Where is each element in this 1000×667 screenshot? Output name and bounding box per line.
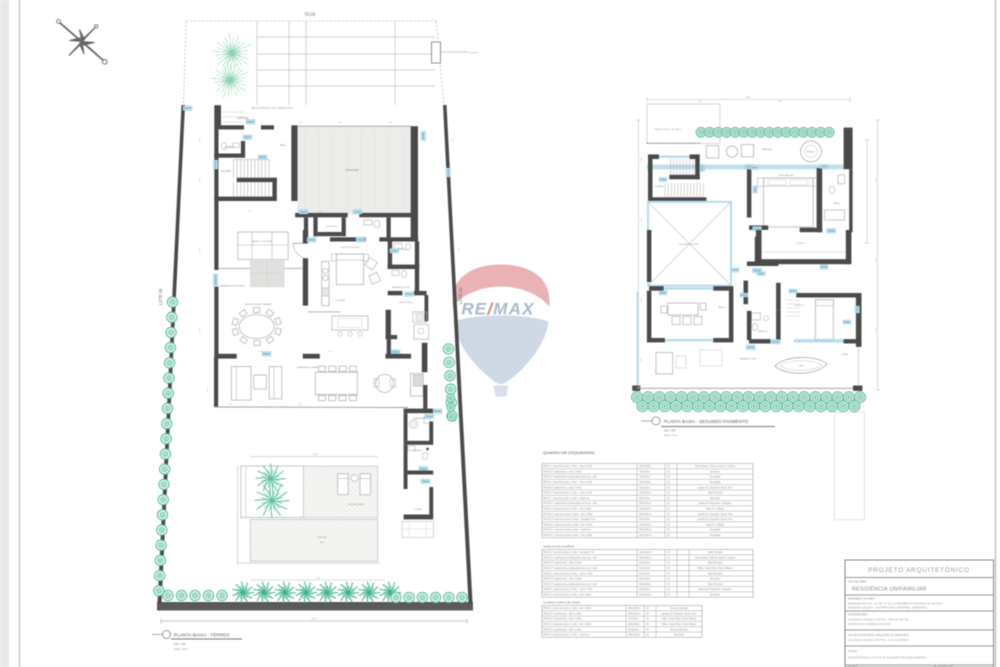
svg-text:240x230cm: 240x230cm xyxy=(628,607,640,610)
svg-text:LAVABO: LAVABO xyxy=(224,146,233,149)
svg-text:Área de Entrada: Área de Entrada xyxy=(670,607,688,610)
svg-text:80x210cm: 80x210cm xyxy=(639,497,650,500)
svg-text:BANHEIRO SOCIAL: BANHEIRO SOCIAL xyxy=(392,286,409,289)
svg-text:GUARDA CORPO DE VIDRO: GUARDA CORPO DE VIDRO xyxy=(543,601,581,605)
svg-text:SUÍTE 02: SUÍTE 02 xyxy=(794,304,804,307)
svg-text:ENDEREÇO DA OBRA:: ENDEREÇO DA OBRA: xyxy=(848,597,876,601)
svg-text:CLOSET: CLOSET xyxy=(796,243,805,245)
svg-text:Escritório: Escritório xyxy=(674,634,685,637)
svg-text:RESIDÊNCIA UNIFAMILIAR: RESIDÊNCIA UNIFAMILIAR xyxy=(852,585,927,593)
svg-text:240x230cm: 240x230cm xyxy=(639,556,651,559)
svg-text:BANHO: BANHO xyxy=(833,202,841,205)
svg-text:SALA DE ESTAR / JANTAR: SALA DE ESTAR / JANTAR xyxy=(244,303,271,306)
svg-text:COZINHA: COZINHA xyxy=(335,299,345,302)
svg-text:Lavabo 01, Depósito, Escrit. F: Lavabo 01, Depósito, Escrit. Flex xyxy=(697,513,733,516)
svg-text:PROJETO ARQUITETÔNICO: PROJETO ARQUITETÔNICO xyxy=(868,565,970,574)
svg-text:Sala Principal: Sala Principal xyxy=(708,583,723,586)
svg-text:ESC. 1/50: ESC. 1/50 xyxy=(664,430,676,433)
svg-text:PM-06 P. madeira lisa - abrir: PM-06 P. madeira lisa - abrir 1 folha xyxy=(544,578,583,581)
svg-text:PM-07 P. madeira lisa encabeça: PM-07 P. madeira lisa encabeçada semi-oc… xyxy=(544,583,598,586)
svg-text:160x210cm: 160x210cm xyxy=(639,523,651,526)
svg-text:SALA TV / LEITURA: SALA TV / LEITURA xyxy=(252,240,272,243)
svg-text:HALL: HALL xyxy=(280,144,287,147)
svg-text:240x230cm: 240x230cm xyxy=(628,612,640,615)
svg-text:240x230cm: 240x230cm xyxy=(639,465,651,468)
svg-text:80x210cm: 80x210cm xyxy=(639,562,650,565)
svg-text:PM-08 P. madeira lisa encabeça: PM-08 P. madeira lisa encabeçada semi-oc… xyxy=(544,502,598,505)
svg-text:70x210cm: 70x210cm xyxy=(639,567,650,570)
svg-text:PM-05 P. madeira lisa - abrir: PM-05 P. madeira lisa - abrir 1 folha xyxy=(544,628,583,631)
svg-text:PM-010 J. alumínio preto c/ vi: PM-010 J. alumínio preto c/ vidro - fixa… xyxy=(544,513,593,516)
svg-text:AUTOR DO PROJETO: ARQUITETO E: AUTOR DO PROJETO: ARQUITETO E URBANISTA xyxy=(848,633,909,637)
svg-text:PM-07 J. alumínio preto c/ vid: PM-07 J. alumínio preto c/ vidro - maxim… xyxy=(544,497,590,500)
svg-text:FAZENDA JACUHY - DISTRITO DE C: FAZENDA JACUHY - DISTRITO DE CARAPINA - … xyxy=(848,606,927,610)
svg-text:LOTE 04: LOTE 04 xyxy=(458,287,463,304)
svg-text:Escritório: Escritório xyxy=(710,594,721,597)
svg-text:Quarto de Hóspedes, Garagem: Quarto de Hóspedes, Garagem xyxy=(698,502,731,505)
svg-text:PM-09 J. alumínio preto c/ vid: PM-09 J. alumínio preto c/ vidro - fixa … xyxy=(544,594,592,597)
svg-text:Circulação: Circulação xyxy=(709,476,721,479)
svg-text:PM-04 J. alumínio preto c/ vid: PM-04 J. alumínio preto c/ vidro - corre… xyxy=(544,481,593,484)
svg-text:38.17: 38.17 xyxy=(311,619,317,621)
svg-text:PM-02 P. madeira lisa - abrir: PM-02 P. madeira lisa - abrir 1 folha xyxy=(544,612,583,615)
svg-text:Suíte Master, Sala de Jantar,: Suíte Master, Sala de Jantar, Cozinha xyxy=(695,556,736,559)
svg-text:PM-05 J. alumínio preto c/ vid: PM-05 J. alumínio preto c/ vidro - corre… xyxy=(544,572,593,575)
svg-text:Office, Suíte Filha, Closet Ma: Office, Suíte Filha, Closet Master xyxy=(661,623,696,626)
svg-text:PLANTA BAIXA - SEGUNDO PAVIMEN: PLANTA BAIXA - SEGUNDO PAVIMENTO xyxy=(664,419,749,424)
svg-text:PLANTA BAIXA LAYOUT E QUADRO D: PLANTA BAIXA LAYOUT E QUADRO DE ESQUADRI… xyxy=(848,656,926,660)
svg-text:Sala TV e Village: Sala TV e Village xyxy=(706,523,725,526)
svg-text:ESCADA: ESCADA xyxy=(655,185,664,188)
svg-text:Escritório: Escritório xyxy=(710,497,721,500)
svg-text:80x210cm: 80x210cm xyxy=(639,572,650,575)
svg-text:PM-04 J. alumínio preto c/ vid: PM-04 J. alumínio preto c/ vidro - fixa … xyxy=(544,623,592,626)
svg-text:160x210cm: 160x210cm xyxy=(639,492,651,495)
svg-text:Circulação: Circulação xyxy=(709,529,721,532)
svg-text:GARAGEM: GARAGEM xyxy=(345,168,358,172)
svg-text:PM-012 J. alumínio preto c/ vi: PM-012 J. alumínio preto c/ vidro - fixa… xyxy=(544,523,593,526)
svg-text:Lavabo 01, Depósito, Escrit. F: Lavabo 01, Depósito, Escrit. Flex xyxy=(661,612,697,615)
svg-text:160x210cm: 160x210cm xyxy=(639,481,651,484)
svg-text:PLANTA BAIXA - TÉRREO: PLANTA BAIXA - TÉRREO xyxy=(174,633,230,638)
svg-text:Área de Entrada: Área de Entrada xyxy=(670,628,688,631)
svg-text:PROPRIETÁRIO:: PROPRIETÁRIO: xyxy=(848,613,869,617)
svg-text:PM-05 P. madeira lisa - abrir: PM-05 P. madeira lisa - abrir 1 folha xyxy=(544,486,583,489)
svg-text:Escritório: Escritório xyxy=(710,470,721,473)
svg-text:SPA: SPA xyxy=(799,365,804,368)
svg-text:70x210cm: 70x210cm xyxy=(628,618,639,621)
svg-text:Sala Principal: Sala Principal xyxy=(708,572,723,575)
svg-text:70x210cm: 70x210cm xyxy=(639,470,650,473)
svg-text:ESCRITÓRIO: ESCRITÓRIO xyxy=(399,301,413,304)
svg-text:Quarto de Hóspedes, Garagem: Quarto de Hóspedes, Garagem xyxy=(698,588,731,591)
svg-text:80x210cm: 80x210cm xyxy=(628,628,639,631)
svg-text:LOTE 06: LOTE 06 xyxy=(158,288,163,305)
svg-text:DEPÓSITO: DEPÓSITO xyxy=(326,225,338,228)
svg-text:BALANÇO: BALANÇO xyxy=(807,151,816,154)
svg-text:DECK MOLHADO: DECK MOLHADO xyxy=(348,503,365,506)
svg-text:BANHO 02: BANHO 02 xyxy=(758,330,767,333)
svg-text:240x230cm: 240x230cm xyxy=(639,508,651,511)
svg-text:ÁREA: 162m²: ÁREA: 162m² xyxy=(664,434,678,437)
svg-text:35m³: 35m³ xyxy=(320,541,325,544)
svg-text:PM-08 J. alumínio preto c/ vid: PM-08 J. alumínio preto c/ vidro - corre… xyxy=(544,588,593,591)
svg-text:PM-04 P. madeira lisa encabeça: PM-04 P. madeira lisa encabeçada semi-oc… xyxy=(544,567,598,570)
svg-text:ATAQUE FRONT. TELHADO: ATAQUE FRONT. TELHADO xyxy=(655,128,682,131)
svg-text:RECUO FRONTAL 5M / FRENTE RUA: RECUO FRONTAL 5M / FRENTE RUA xyxy=(251,107,293,110)
svg-text:ESC. 1/50: ESC. 1/50 xyxy=(174,642,186,646)
svg-text:PM-01 J. alumínio preto c/ vid: PM-01 J. alumínio preto c/ vidro - fixa … xyxy=(544,607,592,610)
svg-text:FOLHA:: FOLHA: xyxy=(848,649,858,653)
svg-text:Office, Suíte Filha, Closet Ma: Office, Suíte Filha, Closet Master xyxy=(661,618,696,621)
svg-text:PM-013 J. alumínio preto c/ vi: PM-013 J. alumínio preto c/ vidro - maxi… xyxy=(544,529,591,532)
svg-text:Sala Principal: Sala Principal xyxy=(708,551,723,554)
svg-text:240x230cm: 240x230cm xyxy=(639,513,651,516)
svg-text:Suíte Master, Sala de Jantar,: Suíte Master, Sala de Jantar, Cozinha xyxy=(695,465,736,468)
svg-text:JANELAS DE ALUMÍNIO: JANELAS DE ALUMÍNIO xyxy=(543,545,575,549)
svg-text:PM-03 P. madeira lisa - abrir: PM-03 P. madeira lisa - abrir 1 folha xyxy=(544,618,583,621)
svg-text:ESTAR: ESTAR xyxy=(842,353,849,356)
svg-text:160x210cm: 160x210cm xyxy=(639,594,651,597)
svg-text:RUA: RUA xyxy=(305,12,316,18)
svg-text:PM-014 J. alumínio preto c/ vi: PM-014 J. alumínio preto c/ vidro - fixa… xyxy=(544,534,593,537)
svg-text:PM-01 J. alumínio preto c/ vid: PM-01 J. alumínio preto c/ vidro - corre… xyxy=(544,465,593,468)
svg-text:PM-06 J. alumínio preto c/ vid: PM-06 J. alumínio preto c/ vidro - corre… xyxy=(544,492,593,495)
svg-text:VARANDA 2° PAV: VARANDA 2° PAV xyxy=(740,358,757,361)
svg-text:280x230cm: 280x230cm xyxy=(639,529,651,532)
svg-text:PM-06 J. alumínio preto c/ vid: PM-06 J. alumínio preto c/ vidro - maxim… xyxy=(544,634,590,637)
svg-text:VARANDA GOURMET: VARANDA GOURMET xyxy=(297,366,320,369)
svg-text:PM-02 P. madeira lisa - abrir: PM-02 P. madeira lisa - abrir 1 folha xyxy=(544,470,583,473)
svg-text:Escritório: Escritório xyxy=(710,578,721,581)
svg-text:PM-03 P. madeira lisa - abrir: PM-03 P. madeira lisa - abrir 1 folha xyxy=(544,562,583,565)
svg-text:SALA TV: SALA TV xyxy=(718,306,727,309)
svg-text:RE/MAX: RE/MAX xyxy=(461,300,535,319)
svg-text:VARANDA DE ENTRADA: VARANDA DE ENTRADA xyxy=(220,285,246,288)
svg-text:TIPO DE OBRA:: TIPO DE OBRA: xyxy=(848,580,867,584)
svg-text:VARANDA: VARANDA xyxy=(762,148,773,151)
svg-text:QUADRO DE ESQUADRIAS: QUADRO DE ESQUADRIAS xyxy=(543,450,595,455)
svg-text:80x210cm: 80x210cm xyxy=(639,518,650,521)
svg-text:DUCHA: DUCHA xyxy=(414,508,422,511)
svg-text:Sala TV e Village: Sala TV e Village xyxy=(706,508,725,511)
svg-text:280x230cm: 280x230cm xyxy=(639,502,651,505)
svg-text:160x210cm: 160x210cm xyxy=(639,551,651,554)
svg-text:Lavabo 01, Depósito, Escrit. F: Lavabo 01, Depósito, Escrit. Flex xyxy=(697,486,733,489)
svg-text:PM-03 P. madeira lisa encabeça: PM-03 P. madeira lisa encabeçada semi-oc… xyxy=(544,476,598,479)
svg-text:JULIANA D ANGELO ROTTA - 066.3: JULIANA D ANGELO ROTTA - 066.347.057-25 xyxy=(848,618,909,622)
svg-text:JULIANA D ANGELO ROTTA - CAU A: JULIANA D ANGELO ROTTA - CAU A 87469-8 xyxy=(848,638,908,642)
svg-text:280x230cm: 280x230cm xyxy=(628,623,640,626)
svg-text:PISCINA: PISCINA xyxy=(318,536,327,539)
svg-text:EVERALDO CORREIA DA SILVA: EVERALDO CORREIA DA SILVA xyxy=(848,622,891,626)
svg-text:70x210cm: 70x210cm xyxy=(639,476,650,479)
svg-text:Office, Suíte Filha, Closet Ma: Office, Suíte Filha, Closet Master xyxy=(697,567,732,570)
svg-text:ÁREA: 248m²: ÁREA: 248m² xyxy=(174,648,188,651)
svg-text:PM-09 J. alumínio preto c/ vid: PM-09 J. alumínio preto c/ vidro - fixa … xyxy=(544,508,592,511)
svg-text:ESCADA: ESCADA xyxy=(221,170,231,173)
svg-text:70x210cm: 70x210cm xyxy=(639,486,650,489)
svg-text:PM-02 P. madeira lisa encabeça: PM-02 P. madeira lisa encabeçada semi-oc… xyxy=(544,556,598,559)
svg-text:Sala Principal: Sala Principal xyxy=(708,562,723,565)
svg-text:Lavabo 01, Depósito, Escrit. F: Lavabo 01, Depósito, Escrit. Flex xyxy=(697,518,733,521)
svg-text:SUITE HÓSPEDES: SUITE HÓSPEDES xyxy=(340,246,360,249)
svg-text:PÉ DIREITO DUPLO: PÉ DIREITO DUPLO xyxy=(679,243,699,246)
svg-text:240x230cm: 240x230cm xyxy=(639,583,651,586)
svg-text:PM-011 P. alumínio preto c/ vi: PM-011 P. alumínio preto c/ vidro - cama… xyxy=(544,518,596,521)
svg-text:PORTÃO: PORTÃO xyxy=(469,52,478,55)
svg-text:80x210cm: 80x210cm xyxy=(639,578,650,581)
svg-text:Circulação: Circulação xyxy=(709,481,721,484)
svg-text:14.90: 14.90 xyxy=(745,97,751,99)
svg-text:80x210cm: 80x210cm xyxy=(639,588,650,591)
svg-text:240x230cm: 240x230cm xyxy=(628,634,640,637)
svg-text:Sala Principal: Sala Principal xyxy=(708,492,723,495)
svg-text:240x230cm: 240x230cm xyxy=(639,534,651,537)
svg-text:Circulação: Circulação xyxy=(709,534,721,537)
svg-text:PM-01 P. alumínio preto c/ vid: PM-01 P. alumínio preto c/ vidro - camar… xyxy=(544,551,595,554)
svg-text:SUÍTE MASTER: SUÍTE MASTER xyxy=(778,174,794,177)
